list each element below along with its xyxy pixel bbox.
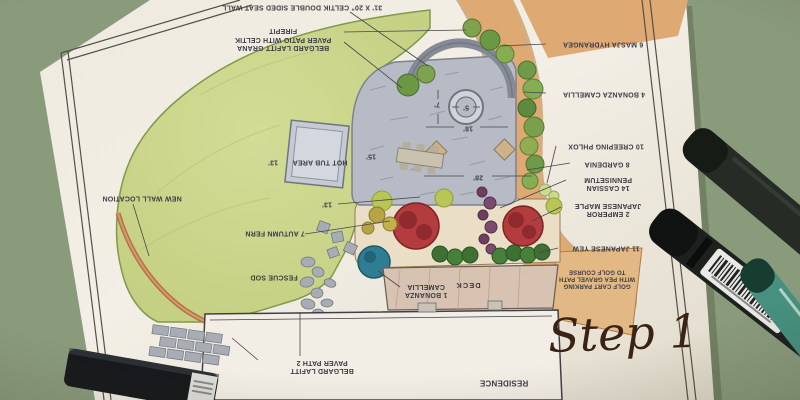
label-paver-path: BELGARD LAFITT PAVER PATH 2 — [280, 357, 364, 374]
label-fescue-sod: FESCUE SOD — [242, 272, 306, 280]
label-golf-cart: GOLF CART PARKING WITH PEA GRAVEL PATH T… — [556, 267, 638, 289]
dim-patio-length: 28' — [468, 172, 488, 180]
label-residence: RESIDENCE — [466, 378, 542, 388]
label-pennisetum: 14 CASSIAN PENNISETUM — [568, 174, 648, 191]
label-camellia-1: 1 BONANZA CAMELLIA — [396, 281, 456, 298]
camellia-tree-shade — [364, 251, 376, 263]
label-autumn-fern: 7 AUTUMN FERN — [242, 228, 308, 236]
label-hot-tub: HOT TUB AREA — [288, 157, 352, 165]
label-paver-patio: BELGARD LAFITT GRANA PAVER PATIO WITH CE… — [222, 26, 344, 51]
dim-patio-width: 18' — [458, 123, 478, 131]
label-phlox: 10 CREEPING PHLOX — [556, 141, 656, 149]
label-camellia-4: 4 BONANZA CAMELLIA — [548, 89, 660, 97]
step-overlay-text: Step 1 — [547, 303, 719, 363]
label-maple: 2 EMPEROR JAPANESE MAPLE — [562, 200, 654, 217]
label-seat-wall: 31' X 20" CELTIK DOUBLE SIDED SEAT WALL — [196, 2, 408, 10]
label-new-wall: NEW WALL LOCATION — [94, 193, 190, 201]
dim-hot-tub-left: 13' — [264, 157, 282, 165]
dim-patio-depth: 7' — [430, 99, 444, 107]
dim-lawn-edge: 13' — [318, 199, 336, 207]
label-hydrangea: 6 MASJA HYDRANGEA — [549, 39, 657, 47]
label-yew: 11 JAPANESE YEW — [558, 243, 654, 251]
hot-tub — [285, 120, 349, 188]
label-gardenia: 8 GARDENIA — [572, 159, 642, 167]
photo-scene: 31' X 20" CELTIK DOUBLE SIDED SEAT WALL … — [0, 0, 800, 400]
dim-hot-tub-right: 15' — [362, 151, 380, 159]
dim-firepit: 5' — [458, 102, 474, 110]
